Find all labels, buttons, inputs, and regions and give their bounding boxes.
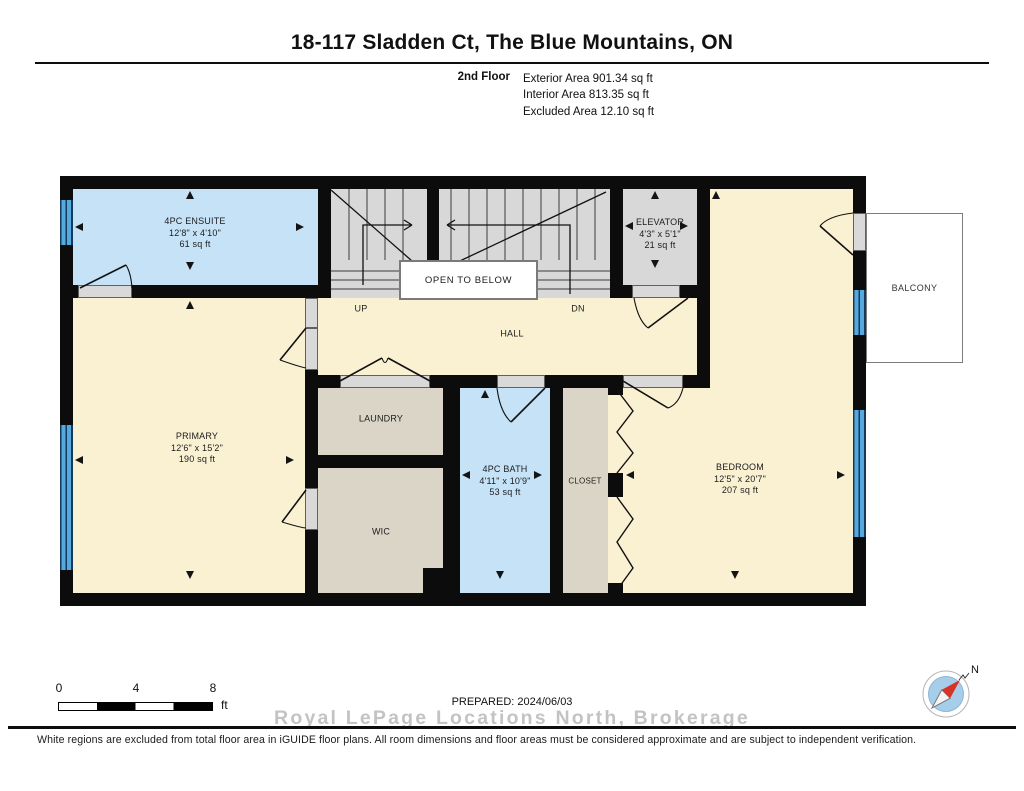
excluded-area: Excluded Area 12.10 sq ft: [523, 104, 654, 120]
floorplan-page: 18-117 Sladden Ct, The Blue Mountains, O…: [0, 0, 1024, 791]
wall-closet-mid-block: [608, 473, 623, 497]
exterior-area: Exterior Area 901.34 sq ft: [523, 71, 654, 87]
room-label-hall: HALL: [500, 328, 523, 340]
wall-elevator-right: [697, 189, 710, 388]
room-area: 53 sq ft: [479, 487, 530, 499]
sill-elevator-door: [632, 285, 680, 298]
page-title: 18-117 Sladden Ct, The Blue Mountains, O…: [0, 31, 1024, 55]
room-label-elevator: ELEVATOR 4'3" x 5'1" 21 sq ft: [636, 217, 684, 252]
room-dims: 4'11" x 10'9": [479, 475, 530, 487]
room-area: 190 sq ft: [171, 454, 223, 466]
room-area: 207 sq ft: [714, 485, 766, 497]
dim-arrow-right-icon: [296, 223, 304, 231]
dim-arrow-left-icon: [75, 223, 83, 231]
scale-tick-4: 4: [129, 681, 143, 695]
floor-label: 2nd Floor: [350, 71, 510, 83]
dim-arrow-down-icon: [186, 262, 194, 270]
dim-arrow-up-icon: [481, 390, 489, 398]
room-name: 4PC ENSUITE: [164, 216, 225, 228]
wall-closet-bottom-stub: [608, 583, 623, 593]
room-dims: 12'5" x 20'7": [714, 473, 766, 485]
dim-arrow-left-icon: [625, 222, 633, 230]
stair-label-dn: DN: [571, 303, 584, 315]
dim-arrow-down-icon: [731, 571, 739, 579]
dim-arrow-down-icon: [651, 260, 659, 268]
room-closet: [563, 388, 608, 593]
stair-label-up: UP: [355, 303, 368, 315]
window-bedroom-top: [853, 290, 866, 335]
room-name: BEDROOM: [714, 462, 766, 474]
wall-stair-divider: [427, 189, 439, 260]
sill-ensuite-door: [78, 285, 132, 298]
disclaimer-text: White regions are excluded from total fl…: [37, 734, 997, 746]
title-divider: [35, 62, 989, 64]
dim-arrow-down-icon: [186, 571, 194, 579]
room-name: 4PC BATH: [479, 464, 530, 476]
sill-bedroom-door: [623, 375, 683, 388]
window-primary: [60, 425, 73, 570]
area-summary: Exterior Area 901.34 sq ft Interior Area…: [523, 71, 654, 120]
footer-divider: [8, 726, 1016, 729]
room-dims: 12'8" x 4'10": [164, 227, 225, 239]
dim-arrow-left-icon: [462, 471, 470, 479]
room-label-ensuite: 4PC ENSUITE 12'8" x 4'10" 61 sq ft: [164, 216, 225, 251]
dim-arrow-down-icon: [496, 571, 504, 579]
wall-wic-corner-block: [423, 568, 443, 593]
dim-arrow-up-icon: [712, 191, 720, 199]
dim-arrow-up-icon: [186, 191, 194, 199]
sill-balcony-door: [853, 213, 866, 251]
interior-area: Interior Area 813.35 sq ft: [523, 87, 654, 103]
dim-arrow-right-icon: [286, 456, 294, 464]
dim-arrow-left-icon: [75, 456, 83, 464]
wall-ensuite-right: [318, 189, 331, 298]
room-dims: 4'3" x 5'1": [636, 228, 684, 240]
open-to-below: OPEN TO BELOW: [399, 260, 538, 300]
room-label-closet: CLOSET: [568, 475, 601, 487]
dim-arrow-up-icon: [651, 191, 659, 199]
wall-closet-top-stub: [608, 388, 623, 395]
room-area: 61 sq ft: [164, 239, 225, 251]
dim-arrow-right-icon: [837, 471, 845, 479]
dim-arrow-up-icon: [186, 301, 194, 309]
dim-arrow-right-icon: [534, 471, 542, 479]
wall-laundry-bottom: [318, 455, 460, 468]
sill-wic-door: [305, 488, 318, 530]
room-area: 21 sq ft: [636, 240, 684, 252]
room-label-wic: WIC: [372, 526, 390, 538]
room-name: PRIMARY: [171, 431, 223, 443]
sill-primary-door: [305, 328, 318, 370]
wall-outer-top: [60, 176, 866, 189]
wall-outer-bottom: [60, 593, 866, 606]
scale-tick-0: 0: [52, 681, 66, 695]
dim-arrow-left-icon: [626, 471, 634, 479]
compass-icon: N: [915, 661, 983, 725]
room-label-bath: 4PC BATH 4'11" x 10'9" 53 sq ft: [479, 464, 530, 499]
room-dims: 12'6" x 15'2": [171, 442, 223, 454]
window-bedroom-bottom: [853, 410, 866, 537]
compass-north-label: N: [971, 664, 979, 676]
floor-plan: OPEN TO BELOW 4PC ENSUITE 12'8" x 4'10" …: [60, 176, 866, 606]
scale-tick-8: 8: [206, 681, 220, 695]
sill-bath-door: [497, 375, 545, 388]
room-name: ELEVATOR: [636, 217, 684, 229]
sill-hall-left: [305, 298, 318, 328]
room-label-laundry: LAUNDRY: [359, 413, 403, 425]
wall-elevator-left: [610, 189, 623, 298]
wall-bath-left: [443, 388, 460, 593]
dim-arrow-right-icon: [680, 222, 688, 230]
room-label-primary: PRIMARY 12'6" x 15'2" 190 sq ft: [171, 431, 223, 466]
room-balcony: BALCONY: [866, 213, 963, 363]
sill-laundry-door: [340, 375, 430, 388]
window-ensuite: [60, 200, 73, 245]
room-label-bedroom: BEDROOM 12'5" x 20'7" 207 sq ft: [714, 462, 766, 497]
wall-bath-right: [550, 388, 563, 593]
